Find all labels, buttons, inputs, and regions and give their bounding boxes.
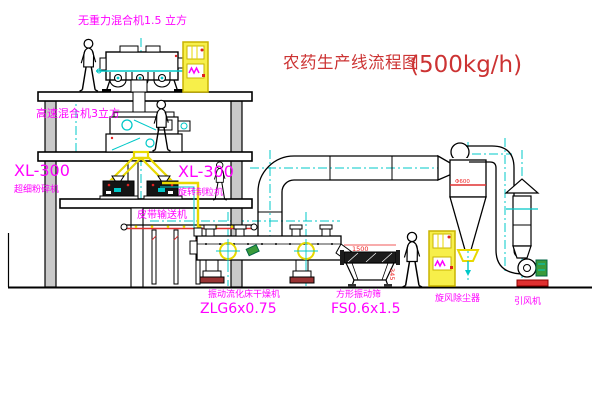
floor-slab-lower	[60, 199, 252, 208]
dim-sieve-height: 345	[388, 268, 396, 280]
label-dryer-model: ZLG6x0.75	[200, 301, 277, 317]
gravity-mixer	[96, 46, 192, 114]
drawing-capacity: (500kg/h)	[410, 52, 522, 78]
conveyor-supports	[152, 230, 200, 284]
label-sieve-model: FS0.6x1.5	[331, 301, 401, 317]
flow-arrow-icon	[465, 270, 471, 276]
label-fan: 引风机	[514, 295, 541, 307]
label-mill-name: 超细粉碎机	[14, 183, 59, 195]
person-ground	[403, 232, 422, 287]
fluid-bed-dryer	[190, 225, 352, 283]
label-dryer-name: 振动流化床干燥机	[208, 288, 280, 300]
fan-base	[517, 280, 548, 286]
fan-motor-icon	[536, 260, 547, 276]
indicator-light-icon	[448, 236, 451, 239]
exhaust-stack	[506, 179, 538, 258]
induced-draft-fan	[517, 259, 548, 286]
label-belt-conveyor: 皮带输送机	[137, 208, 187, 221]
dryer-support	[200, 260, 314, 283]
label-gravity-mixer: 无重力混合机1.5 立方	[78, 13, 187, 27]
dim-sieve-width: 1500	[352, 245, 369, 253]
cyclone-dim-note: Φ600	[455, 179, 470, 185]
mixer-discharge-chute	[133, 92, 145, 114]
label-sieve-name: 方形振动筛	[336, 288, 381, 300]
person-top-floor	[80, 39, 98, 91]
control-cabinet-1	[183, 42, 208, 92]
label-granulator-name: 旋转制粒机	[178, 186, 223, 198]
label-cyclone: 旋风除尘器	[435, 292, 480, 304]
label-granulator-model: XL-300	[178, 162, 234, 181]
label-mill-model: XL-300	[14, 161, 70, 180]
drawing-title: 农药生产线流程图	[283, 53, 419, 72]
drawing-canvas: Φ600	[0, 0, 600, 403]
indicator-light-icon	[201, 49, 204, 52]
label-high-speed-mixer: 高速混合机3立方	[36, 106, 120, 120]
floor-slab-middle	[38, 152, 252, 161]
cad-process-flow-drawing: Φ600	[0, 0, 600, 403]
control-cabinet-2	[429, 231, 455, 286]
